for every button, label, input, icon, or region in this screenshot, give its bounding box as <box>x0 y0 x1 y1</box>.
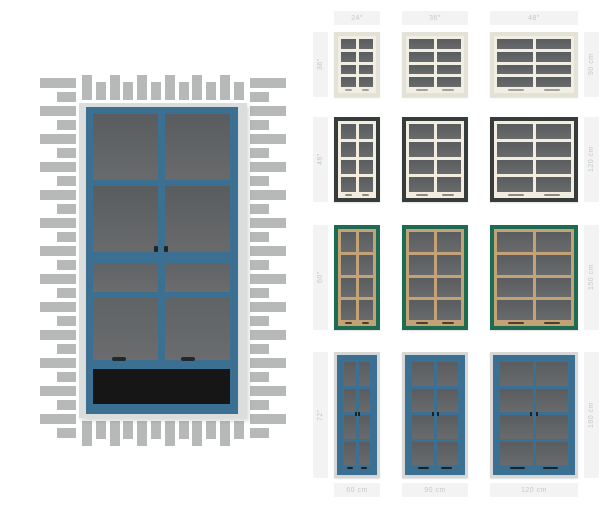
brick <box>151 82 161 100</box>
brick <box>179 421 189 439</box>
glass-pane <box>497 77 533 87</box>
glass-pane <box>341 39 356 49</box>
glass-pane <box>536 389 569 413</box>
brick <box>234 421 244 439</box>
sash-handle-icon <box>441 467 451 469</box>
column-width-label-cm: 90 cm <box>402 483 468 497</box>
brick <box>250 92 269 102</box>
window-frame <box>494 229 574 326</box>
glass-pane <box>93 298 158 360</box>
glass-pane <box>437 300 462 320</box>
brick <box>40 218 76 228</box>
brick <box>206 82 216 100</box>
glazing-grid <box>497 359 571 471</box>
brick <box>220 421 230 446</box>
glass-pane <box>437 278 462 298</box>
glass-pane <box>437 442 459 466</box>
glass-pane <box>500 415 533 439</box>
glass-pane <box>497 39 533 49</box>
brick <box>250 274 286 284</box>
brick <box>137 421 147 446</box>
glass-pane <box>437 77 462 87</box>
brick <box>40 246 76 256</box>
brick <box>234 82 244 100</box>
sash-handle-icon <box>544 322 560 324</box>
glass-pane <box>536 52 572 62</box>
brick <box>250 204 269 214</box>
brick <box>250 232 269 242</box>
sash-handle-icon <box>362 89 370 91</box>
brick <box>57 400 76 410</box>
glass-pane <box>497 124 533 139</box>
row-height-label-cm: 90 cm <box>584 32 599 97</box>
sash-handle-icon <box>416 322 428 324</box>
glass-pane <box>536 142 572 157</box>
brick <box>123 421 133 439</box>
brick <box>250 386 286 396</box>
glass-pane <box>93 114 158 180</box>
glass-pane <box>536 160 572 175</box>
brick <box>250 148 269 158</box>
glass-pane <box>409 39 434 49</box>
brick <box>192 421 202 446</box>
glass-pane <box>359 255 374 275</box>
sash-latch-icon <box>154 246 158 252</box>
window-frame <box>406 36 464 93</box>
brick <box>57 204 76 214</box>
brick <box>40 302 76 312</box>
glass-pane <box>536 77 572 87</box>
sash-handle-icon <box>508 322 524 324</box>
glass-pane <box>497 278 533 298</box>
sash-handle-icon <box>345 194 353 196</box>
glass-pane <box>412 389 434 413</box>
glass-pane <box>341 65 356 75</box>
brick <box>57 344 76 354</box>
brick <box>250 218 286 228</box>
brick <box>57 316 76 326</box>
glass-pane <box>536 177 572 192</box>
sash-handle-icon <box>442 194 454 196</box>
glass-pane <box>497 177 533 192</box>
meeting-rail <box>93 252 230 263</box>
size-option-black-r2-c3[interactable] <box>490 117 578 202</box>
open-sash-gap <box>93 369 230 404</box>
glazing-grid <box>494 121 574 198</box>
muntin <box>93 292 230 298</box>
brick <box>57 260 76 270</box>
sash-handle-icon <box>112 357 126 361</box>
column-width-label-cm: 120 cm <box>490 483 578 497</box>
brick <box>151 421 161 439</box>
window-frame <box>493 355 575 475</box>
brick <box>250 428 269 438</box>
glass-pane <box>536 300 572 320</box>
glass-pane <box>412 442 434 466</box>
size-option-blue-r4-c1[interactable] <box>334 352 380 478</box>
sash-latch-icon <box>358 412 360 416</box>
sash-handle-icon <box>347 467 353 469</box>
brick <box>250 190 286 200</box>
brick <box>250 372 269 382</box>
glass-pane <box>359 160 374 175</box>
window-preview <box>0 0 312 510</box>
column-width-label-in: 24″ <box>334 11 380 25</box>
sash-handle-icon <box>442 322 454 324</box>
window-frame <box>494 121 574 198</box>
glass-pane <box>409 278 434 298</box>
window-frame <box>405 355 465 475</box>
glass-pane <box>437 232 462 252</box>
row-height-label-cm: 150 cm <box>584 225 599 330</box>
glass-pane <box>497 232 533 252</box>
sash-handle-icon <box>345 89 353 91</box>
glass-pane <box>341 177 356 192</box>
brick <box>40 78 76 88</box>
glass-pane <box>344 415 356 439</box>
glass-pane <box>93 186 158 252</box>
brick <box>250 330 286 340</box>
glass-pane <box>409 142 434 157</box>
brick <box>57 176 76 186</box>
glass-pane <box>341 52 356 62</box>
glazing-grid <box>338 121 376 198</box>
sash-handle-icon <box>181 357 195 361</box>
glass-pane <box>344 389 356 413</box>
brick <box>57 372 76 382</box>
glass-pane <box>359 232 374 252</box>
glass-pane <box>437 142 462 157</box>
brick <box>40 134 76 144</box>
brick <box>179 82 189 100</box>
brick <box>40 190 76 200</box>
brick <box>40 414 76 424</box>
glass-pane <box>359 300 374 320</box>
brick <box>40 106 76 116</box>
size-option-blue-r4-c3[interactable] <box>490 352 578 478</box>
glass-pane <box>500 442 533 466</box>
glass-pane <box>359 278 374 298</box>
glass-pane <box>437 39 462 49</box>
glass-pane <box>93 263 158 292</box>
upper-sash-row-1 <box>93 114 230 180</box>
column-width-label-in: 48″ <box>490 11 578 25</box>
glass-pane <box>497 255 533 275</box>
sash-handle-icon <box>362 194 370 196</box>
sash-handle-icon <box>418 467 428 469</box>
size-option-white-r1-c1[interactable] <box>334 32 380 97</box>
glass-pane <box>536 39 572 49</box>
window-frame <box>494 36 574 93</box>
sash-handle-icon <box>543 467 558 469</box>
brick <box>250 344 269 354</box>
glass-pane <box>412 362 434 386</box>
brick <box>57 288 76 298</box>
brick <box>250 316 269 326</box>
brick <box>57 232 76 242</box>
brick <box>250 176 269 186</box>
window-frame <box>337 355 377 475</box>
glass-pane <box>409 77 434 87</box>
glazing-grid <box>409 359 461 471</box>
glazing-grid <box>338 229 376 326</box>
glass-pane <box>497 52 533 62</box>
sash-latch-icon <box>437 412 439 416</box>
glass-pane <box>536 415 569 439</box>
glass-pane <box>359 124 374 139</box>
window-configurator: 24″60 cm36″90 cm48″120 cm36″90 cm48″120 … <box>0 0 612 510</box>
glazing-grid <box>494 36 574 93</box>
brick <box>250 358 286 368</box>
glass-pane <box>165 298 230 360</box>
muntin <box>93 180 230 186</box>
brick <box>165 421 175 446</box>
sash-handle-icon <box>508 194 524 196</box>
sash-handle-icon <box>442 89 454 91</box>
window-frame <box>338 121 376 198</box>
glass-pane <box>437 362 459 386</box>
sash-handle-icon <box>361 467 367 469</box>
brick <box>57 428 76 438</box>
glass-pane <box>536 124 572 139</box>
brick <box>206 421 216 439</box>
size-option-green-r3-c3[interactable] <box>490 225 578 330</box>
sash-handle-icon <box>362 322 370 324</box>
row-height-label-in: 72″ <box>313 352 328 478</box>
size-option-black-r2-c2[interactable] <box>402 117 468 202</box>
preview-window <box>86 107 238 414</box>
sash-handle-icon <box>544 89 560 91</box>
glass-pane <box>359 389 371 413</box>
glass-pane <box>359 442 371 466</box>
glass-pane <box>341 278 356 298</box>
brick <box>40 162 76 172</box>
brick <box>40 330 76 340</box>
glass-pane <box>344 362 356 386</box>
glass-pane <box>341 232 356 252</box>
window-frame <box>406 229 464 326</box>
row-height-label-in: 36″ <box>313 32 328 97</box>
glazing-grid <box>406 36 464 93</box>
glass-pane <box>409 65 434 75</box>
glass-pane <box>409 52 434 62</box>
brick <box>137 75 147 100</box>
brick <box>250 260 269 270</box>
glass-pane <box>500 389 533 413</box>
glass-pane <box>359 77 374 87</box>
glass-pane <box>497 65 533 75</box>
glass-pane <box>536 442 569 466</box>
glass-pane <box>497 300 533 320</box>
sash-latch-icon <box>355 412 357 416</box>
sash-handle-icon <box>416 194 428 196</box>
brick <box>57 148 76 158</box>
glass-pane <box>437 255 462 275</box>
brick <box>250 106 286 116</box>
brick <box>96 82 106 100</box>
brick <box>250 414 286 424</box>
sash-latch-icon <box>164 246 168 252</box>
glass-pane <box>409 177 434 192</box>
sash-latch-icon <box>536 412 538 416</box>
brick <box>250 134 286 144</box>
lower-sash-row-2 <box>93 298 230 360</box>
size-option-white-r1-c3[interactable] <box>490 32 578 97</box>
glass-pane <box>341 142 356 157</box>
glass-pane <box>536 362 569 386</box>
glass-pane <box>536 232 572 252</box>
glass-pane <box>409 232 434 252</box>
size-option-green-r3-c2[interactable] <box>402 225 468 330</box>
window-frame <box>338 36 376 93</box>
brick <box>57 92 76 102</box>
glass-pane <box>359 177 374 192</box>
glazing-grid <box>406 229 464 326</box>
size-option-blue-r4-c2[interactable] <box>402 352 468 478</box>
brick <box>250 78 286 88</box>
brick <box>123 82 133 100</box>
glass-pane <box>341 160 356 175</box>
glass-pane <box>341 300 356 320</box>
window-frame <box>338 229 376 326</box>
brick <box>250 302 286 312</box>
glass-pane <box>341 77 356 87</box>
glass-pane <box>341 255 356 275</box>
glass-pane <box>500 362 533 386</box>
glass-pane <box>341 124 356 139</box>
glass-pane <box>536 255 572 275</box>
brick <box>40 274 76 284</box>
brick <box>82 421 92 446</box>
glass-pane <box>359 362 371 386</box>
glass-pane <box>437 389 459 413</box>
glass-pane <box>359 142 374 157</box>
row-height-label-cm: 180 cm <box>584 352 599 478</box>
glass-pane <box>409 255 434 275</box>
brick <box>220 75 230 100</box>
glass-pane <box>165 263 230 292</box>
sash-handle-icon <box>345 322 353 324</box>
glass-pane <box>497 142 533 157</box>
glazing-grid <box>406 121 464 198</box>
glass-pane <box>409 124 434 139</box>
glass-pane <box>359 52 374 62</box>
row-height-label-in: 60″ <box>313 225 328 330</box>
row-height-label-cm: 120 cm <box>584 117 599 202</box>
glass-pane <box>536 65 572 75</box>
brick <box>57 120 76 130</box>
brick <box>40 358 76 368</box>
glass-pane <box>409 300 434 320</box>
sash-handle-icon <box>416 89 428 91</box>
brick <box>110 421 120 446</box>
glass-pane <box>437 177 462 192</box>
sash-handle-icon <box>510 467 525 469</box>
glass-pane <box>165 114 230 180</box>
glass-pane <box>344 442 356 466</box>
brick <box>250 400 269 410</box>
sash-latch-icon <box>530 412 532 416</box>
column-width-label-in: 36″ <box>402 11 468 25</box>
upper-sash-row-2 <box>93 186 230 252</box>
lower-sash-row-1 <box>93 263 230 292</box>
brick <box>250 288 269 298</box>
column-width-label-cm: 60 cm <box>334 483 380 497</box>
brick <box>165 75 175 100</box>
glass-pane <box>165 186 230 252</box>
glass-pane <box>359 39 374 49</box>
window-frame <box>406 121 464 198</box>
glass-pane <box>497 160 533 175</box>
brick <box>110 75 120 100</box>
glass-pane <box>437 415 459 439</box>
glass-pane <box>359 65 374 75</box>
glass-pane <box>412 415 434 439</box>
sash-latch-icon <box>432 412 434 416</box>
glass-pane <box>536 278 572 298</box>
row-height-label-in: 48″ <box>313 117 328 202</box>
size-option-green-r3-c1[interactable] <box>334 225 380 330</box>
brick <box>82 75 92 100</box>
sash-handle-icon <box>544 194 560 196</box>
glazing-grid <box>494 229 574 326</box>
brick <box>40 386 76 396</box>
brick <box>192 75 202 100</box>
glass-pane <box>359 415 371 439</box>
glass-pane <box>437 160 462 175</box>
brick <box>250 246 286 256</box>
size-option-white-r1-c2[interactable] <box>402 32 468 97</box>
glass-pane <box>437 52 462 62</box>
glass-pane <box>437 124 462 139</box>
sash-handle-icon <box>508 89 524 91</box>
brick <box>96 421 106 439</box>
bottom-rail <box>93 360 230 369</box>
brick <box>250 120 269 130</box>
glazing-grid <box>338 36 376 93</box>
brick <box>250 162 286 172</box>
glass-pane <box>409 160 434 175</box>
size-option-black-r2-c1[interactable] <box>334 117 380 202</box>
preview-glazing <box>93 114 230 404</box>
glass-pane <box>437 65 462 75</box>
